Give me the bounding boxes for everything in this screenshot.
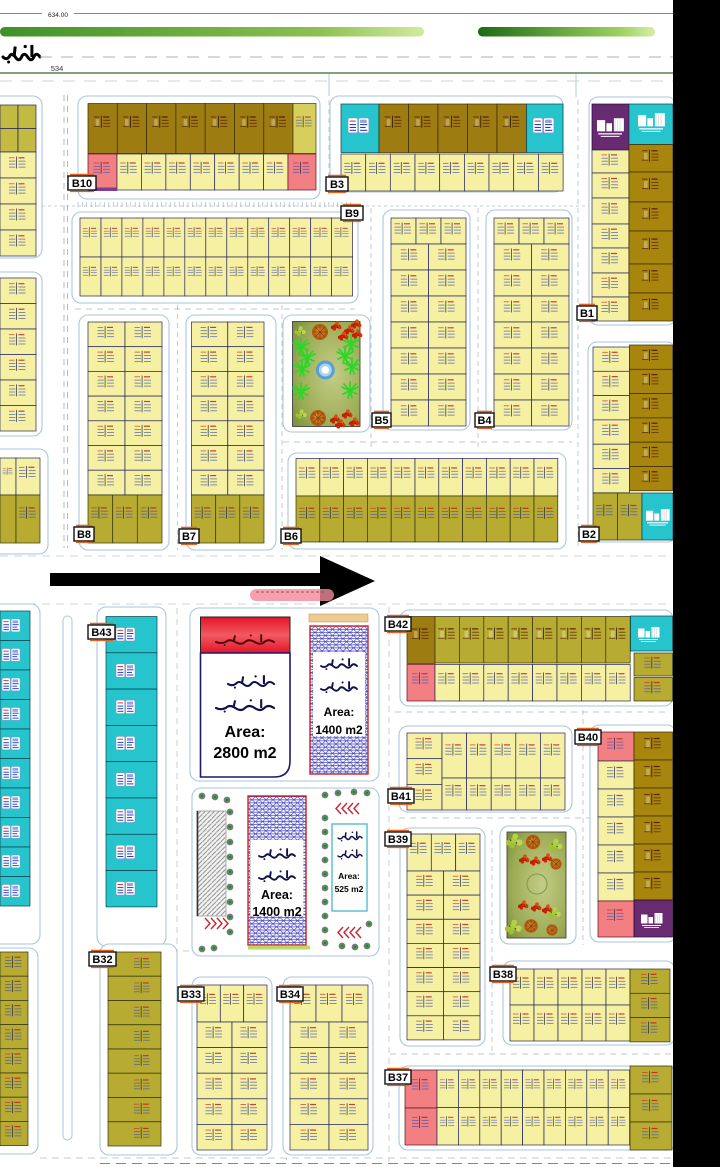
svg-text:B3: B3 [330, 179, 344, 191]
svg-text:634.00: 634.00 [48, 12, 68, 19]
svg-text:B10: B10 [72, 178, 92, 190]
svg-text:B6: B6 [284, 531, 298, 543]
svg-text:B37: B37 [388, 1072, 408, 1084]
svg-text:B38: B38 [493, 969, 513, 981]
svg-text:Area:: Area: [225, 724, 266, 741]
svg-text:Area:: Area: [261, 888, 293, 902]
svg-text:B41: B41 [391, 791, 411, 803]
svg-text:B5: B5 [374, 415, 388, 427]
svg-text:B34: B34 [280, 989, 301, 1001]
svg-text:B39: B39 [388, 834, 408, 846]
svg-text:2800 m2: 2800 m2 [213, 745, 276, 762]
svg-text:B9: B9 [345, 208, 359, 220]
svg-text:B42: B42 [388, 619, 408, 631]
svg-text:B7: B7 [182, 531, 196, 543]
svg-text:525 m2: 525 m2 [335, 884, 364, 894]
svg-text:B4: B4 [477, 415, 492, 427]
svg-text:Area:: Area: [338, 871, 360, 881]
svg-text:1400 m2: 1400 m2 [252, 905, 301, 919]
svg-text:B8: B8 [77, 529, 91, 541]
svg-text:B32: B32 [92, 954, 112, 966]
svg-text:Area:: Area: [324, 705, 355, 719]
svg-text:534: 534 [51, 64, 64, 73]
svg-text:B2: B2 [582, 529, 596, 541]
svg-text:B33: B33 [181, 989, 201, 1001]
svg-text:B1: B1 [580, 308, 594, 320]
svg-text:B43: B43 [91, 627, 111, 639]
svg-text:B40: B40 [578, 732, 598, 744]
svg-text:1400 m2: 1400 m2 [315, 723, 363, 737]
